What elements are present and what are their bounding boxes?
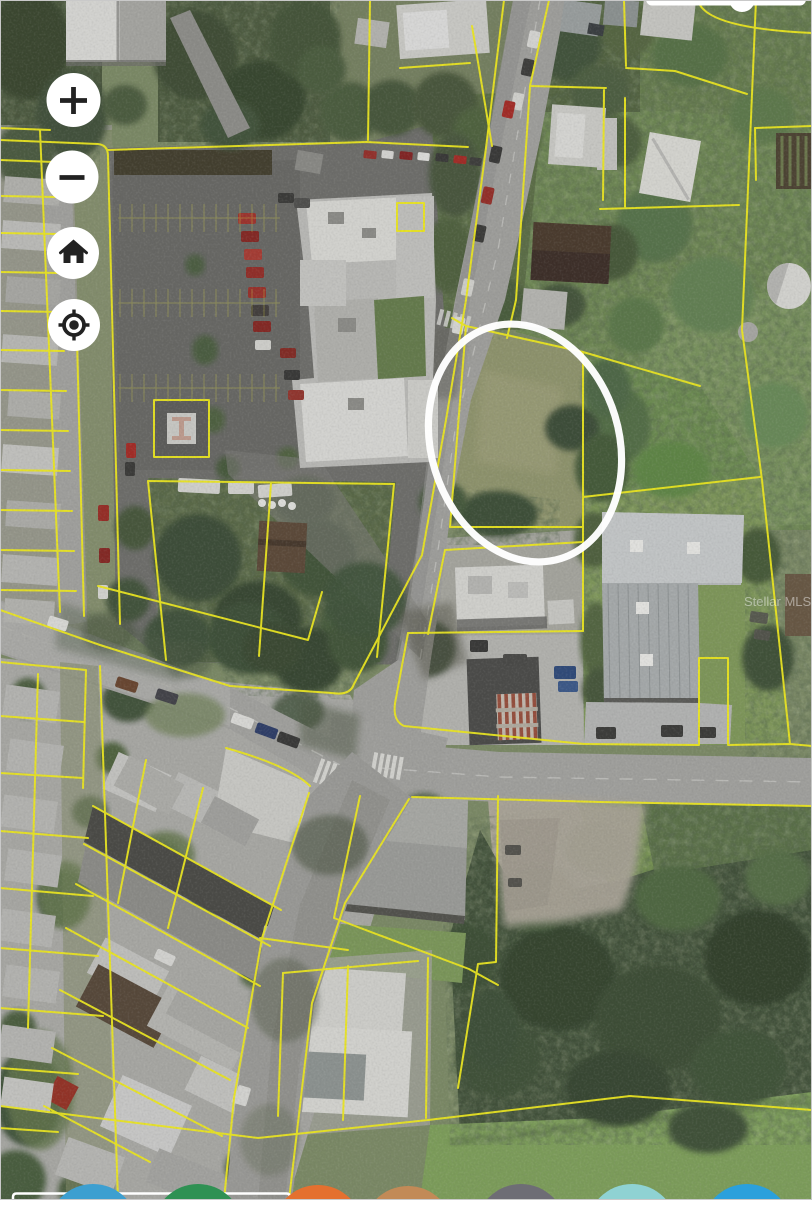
svg-text:Stellar MLS: Stellar MLS: [744, 594, 812, 609]
